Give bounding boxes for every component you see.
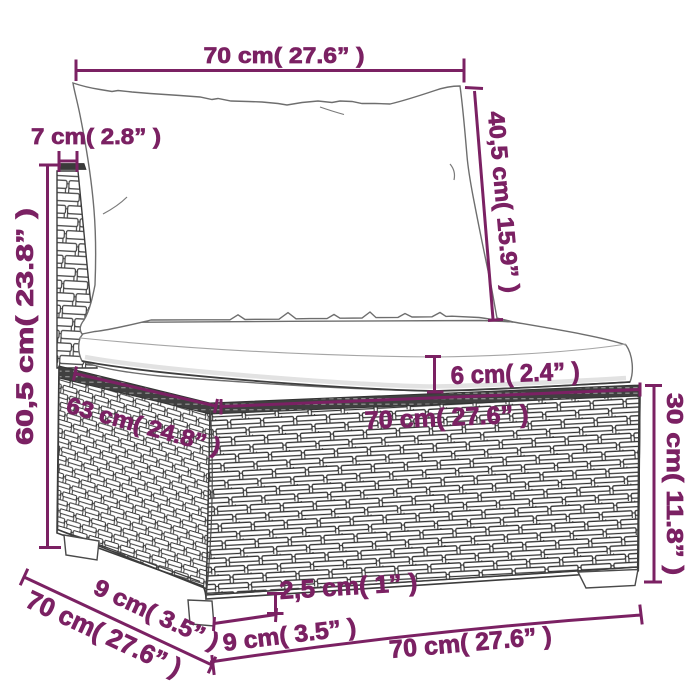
- svg-text:6 cm( 2.4” ): 6 cm( 2.4” ): [450, 358, 580, 390]
- svg-text:30 cm( 11.8” ): 30 cm( 11.8” ): [662, 393, 688, 575]
- svg-text:70 cm( 27.6” ): 70 cm( 27.6” ): [204, 43, 365, 68]
- svg-text:7 cm( 2.8” ): 7 cm( 2.8” ): [31, 124, 161, 149]
- svg-text:60,5 cm( 23.8” ): 60,5 cm( 23.8” ): [12, 208, 39, 445]
